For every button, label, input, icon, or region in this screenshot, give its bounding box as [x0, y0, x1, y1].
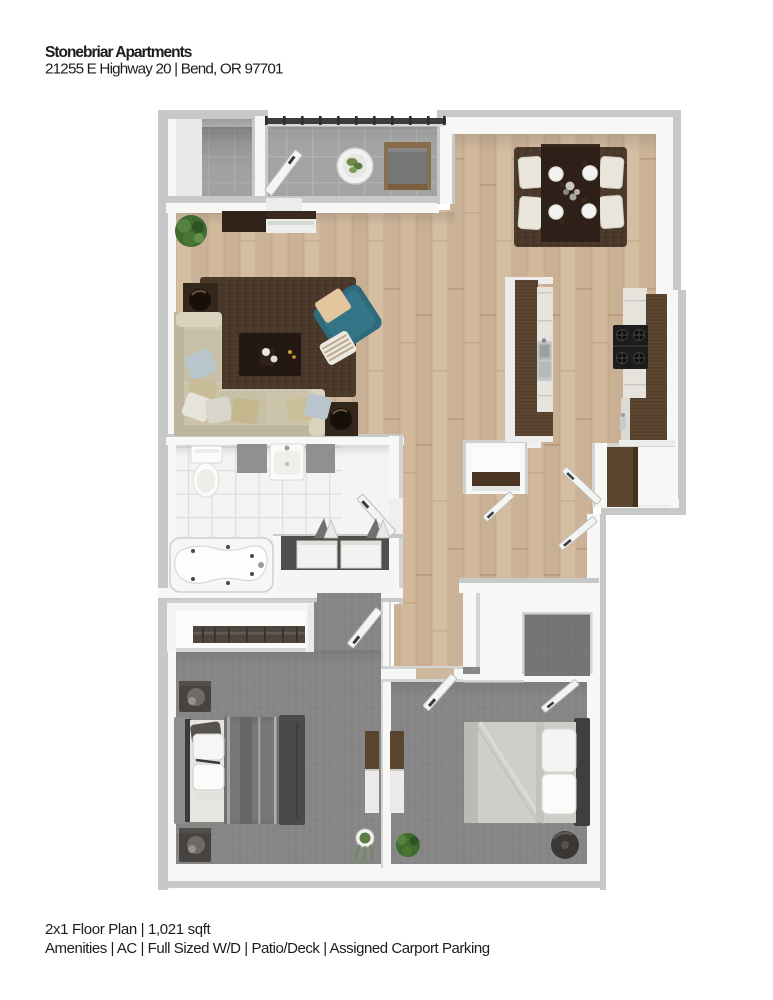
svg-text:21255 E Highway 20 | Bend, OR: 21255 E Highway 20 | Bend, OR 97701	[45, 61, 283, 78]
svg-text:2x1 Floor Plan | 1,021 sqft: 2x1 Floor Plan | 1,021 sqft	[45, 921, 212, 938]
svg-text:Stonebriar Apartments: Stonebriar Apartments	[45, 44, 192, 61]
svg-text:Amenities | AC | Full Sized W/: Amenities | AC | Full Sized W/D | Patio/…	[45, 940, 490, 957]
